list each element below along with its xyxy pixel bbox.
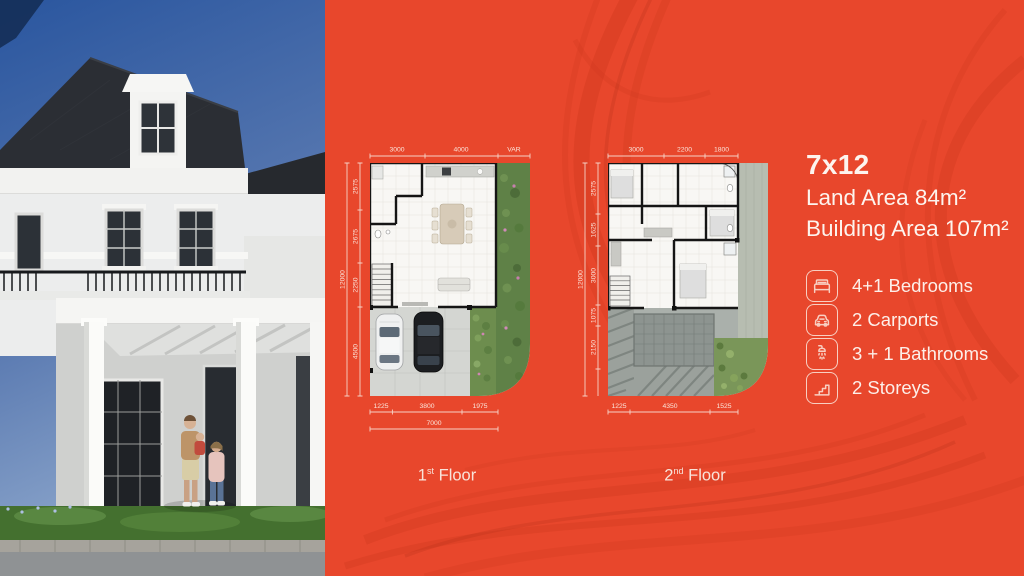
dimension-label: 3000 (591, 268, 598, 283)
dimension-label: 3000 (389, 147, 404, 154)
dimension-label: 1525 (716, 403, 731, 410)
dimension-label: 1225 (373, 403, 388, 410)
dimension-label: 1225 (611, 403, 626, 410)
person-child (195, 433, 206, 455)
spec-bathrooms: 3 + 1 Bathrooms (806, 339, 988, 369)
first-floor-label: 1st Floor (387, 466, 507, 486)
bed-icon (806, 270, 838, 302)
dimension-label: 2675 (353, 229, 360, 244)
building-area: Building Area 107m² (806, 213, 1009, 244)
dimension-label: 3800 (419, 403, 434, 410)
spec-list: 4+1 Bedrooms 2 Carports (806, 271, 988, 407)
dimension-label: 2575 (353, 179, 360, 194)
dimension-label: 1800 (714, 147, 729, 154)
house-illustration (0, 0, 325, 576)
dimension-label: 7000 (426, 420, 441, 427)
brochure-panel: 3000 4000 VAR 12000 2575 2675 2250 4500 … (325, 0, 1024, 576)
dimension-label: 4350 (662, 403, 677, 410)
unit-type: 7x12 (806, 148, 1009, 182)
dimension-label: 12000 (578, 270, 585, 289)
land-area: Land Area 84m² (806, 182, 1009, 213)
spec-label: 4+1 Bedrooms (852, 275, 973, 297)
white-car (376, 314, 403, 370)
dimension-label: 1625 (591, 222, 598, 237)
dimension-label: 2250 (353, 277, 360, 292)
house-photo (0, 0, 325, 576)
shower-icon (806, 338, 838, 370)
stairs-icon (806, 372, 838, 404)
dimension-label: 3000 (628, 147, 643, 154)
dimension-label: 2200 (677, 147, 692, 154)
dimension-label: 2150 (591, 340, 598, 355)
spec-label: 3 + 1 Bathrooms (852, 343, 988, 365)
dimension-label: 12000 (340, 270, 347, 289)
dimension-label: 1975 (472, 403, 487, 410)
spec-storeys: 2 Storeys (806, 373, 988, 403)
dimension-label: 4000 (453, 147, 468, 154)
dimension-label: 4500 (353, 344, 360, 359)
unit-title-block: 7x12 Land Area 84m² Building Area 107m² (806, 148, 1009, 244)
dimension-label: 1075 (591, 308, 598, 323)
spec-label: 2 Carports (852, 309, 938, 331)
brochure-slide: 3000 4000 VAR 12000 2575 2675 2250 4500 … (0, 0, 1024, 576)
first-floor-plan: 3000 4000 VAR 12000 2575 2675 2250 4500 … (338, 128, 540, 438)
spec-bedrooms: 4+1 Bedrooms (806, 271, 988, 301)
dimension-label: 2575 (591, 181, 598, 196)
black-car (414, 312, 443, 372)
car-icon (806, 304, 838, 336)
spec-carports: 2 Carports (806, 305, 988, 335)
second-floor-plan: 3000 2200 1800 12000 2575 1625 3000 1075… (578, 128, 775, 438)
dimension-label: VAR (507, 147, 521, 154)
second-floor-label: 2nd Floor (635, 466, 755, 486)
spec-label: 2 Storeys (852, 377, 930, 399)
